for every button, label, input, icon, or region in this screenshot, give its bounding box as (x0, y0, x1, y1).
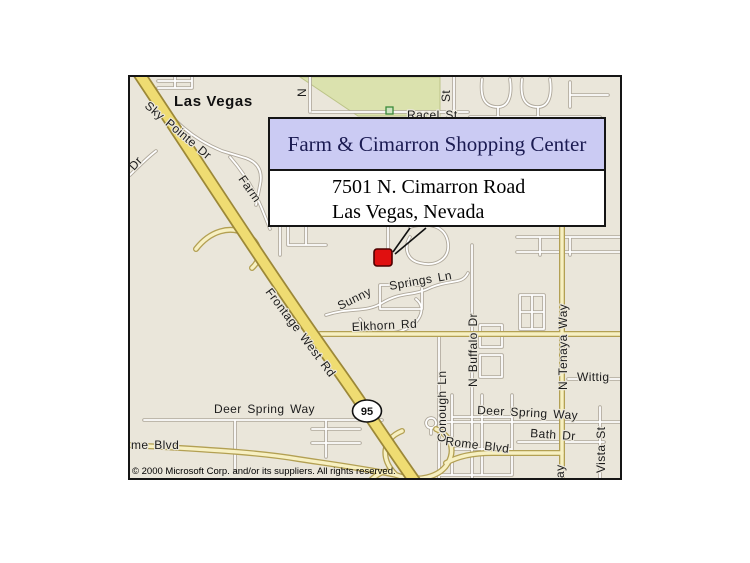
street-label-n-partial: N (295, 88, 309, 97)
city-label: Las Vegas (174, 93, 253, 110)
street-label-rome-blvd-partial: me Blvd (131, 438, 179, 452)
street-label-dr-partial: Dr (130, 154, 145, 173)
street-label-n-tenaya-way: N Tenaya Way (556, 304, 570, 390)
location-marker-icon (374, 249, 392, 266)
street-label-way-partial: ay (553, 465, 567, 478)
street-label-n-buffalo-dr: N Buffalo Dr (466, 313, 480, 387)
street-label-deer-spring-way-left: Deer Spring Way (214, 402, 315, 416)
callout-title: Farm & Cimarron Shopping Center (270, 119, 604, 171)
map-image: Las Vegas Sky Pointe Dr Dr Farm Racel St… (128, 75, 622, 480)
callout-address-line1: 7501 N. Cimarron Road (332, 175, 604, 200)
street-label-vista-st: Vista St (594, 426, 608, 473)
copyright-text: © 2000 Microsoft Corp. and/or its suppli… (132, 466, 396, 477)
park-icon (386, 107, 393, 114)
street-label-conough-ln: Conough Ln (435, 371, 449, 442)
highway-95-shield-icon: 95 (353, 400, 382, 422)
street-label-wittig: Wittig (577, 370, 609, 384)
callout-address-line2: Las Vegas, Nevada (332, 200, 604, 225)
street-label-st-partial: St (439, 90, 453, 102)
callout-pointer-line (393, 228, 426, 254)
location-callout: Farm & Cimarron Shopping Center 7501 N. … (268, 117, 606, 227)
svg-text:95: 95 (361, 406, 373, 418)
page: { "callout": { "title": "Farm & Cimarron… (0, 0, 750, 563)
callout-address: 7501 N. Cimarron Road Las Vegas, Nevada (270, 171, 604, 225)
